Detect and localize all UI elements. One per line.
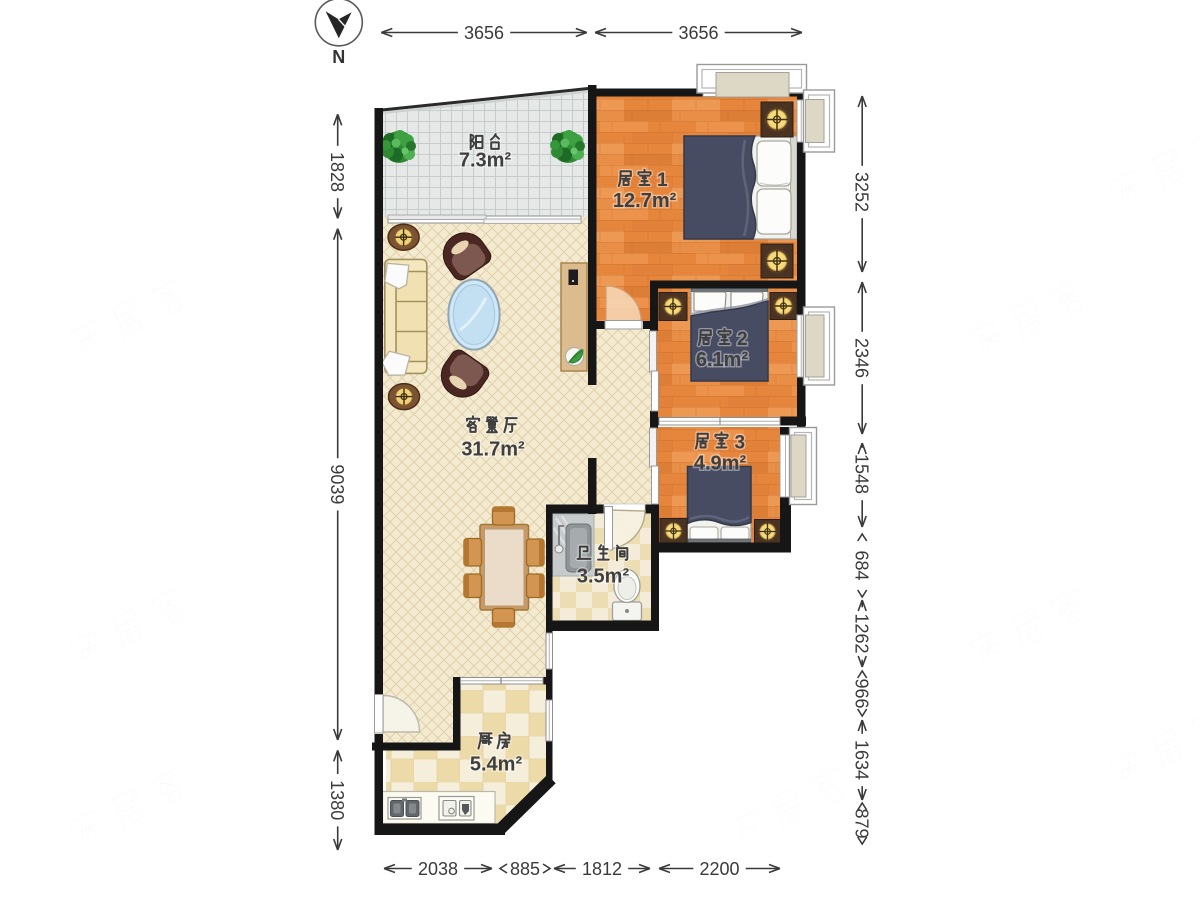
svg-text:966: 966 [852,678,872,708]
svg-text:N: N [332,47,345,67]
svg-text:2038: 2038 [418,859,458,879]
svg-text:2346: 2346 [852,338,872,378]
svg-text:3656: 3656 [678,23,718,43]
svg-text:1: 1 [657,170,668,191]
svg-text:12.7m²: 12.7m² [613,190,677,212]
svg-text:3.5m²: 3.5m² [577,566,630,588]
svg-text:1262: 1262 [852,613,872,653]
svg-text:885: 885 [510,859,540,879]
svg-text:6.1m²: 6.1m² [696,349,749,371]
svg-text:31.7m²: 31.7m² [461,439,525,461]
svg-text:2: 2 [737,329,748,350]
svg-text:7.3m²: 7.3m² [459,150,512,172]
svg-text:2200: 2200 [699,859,739,879]
svg-text:3252: 3252 [852,172,872,212]
svg-text:879: 879 [852,808,872,838]
svg-text:1548: 1548 [852,454,872,494]
svg-text:1812: 1812 [582,859,622,879]
svg-text:1380: 1380 [327,780,347,820]
svg-text:684: 684 [852,550,872,580]
svg-text:5.4m²: 5.4m² [470,754,523,776]
svg-text:3656: 3656 [464,23,504,43]
svg-text:1634: 1634 [852,740,872,780]
svg-text:9039: 9039 [327,464,347,504]
svg-text:1828: 1828 [327,152,347,192]
svg-text:3: 3 [735,433,746,454]
svg-text:4.9m²: 4.9m² [694,453,747,475]
